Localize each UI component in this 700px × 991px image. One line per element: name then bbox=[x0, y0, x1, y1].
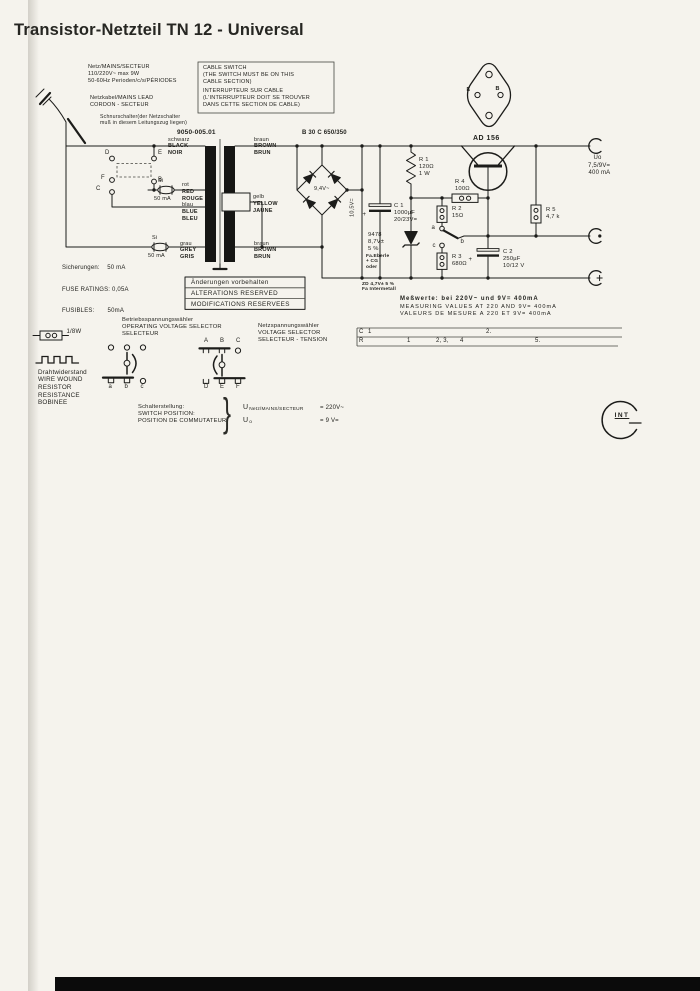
fuse-symbol-grey bbox=[152, 243, 168, 251]
r2-line: 15Ω bbox=[452, 213, 463, 220]
table-cell: 4 bbox=[460, 338, 464, 345]
resistor-r1-symbol bbox=[407, 146, 416, 198]
page-title: Transistor-Netzteil TN 12 - Universal bbox=[14, 27, 304, 34]
selector-title-line: Betriebsspannungswähler bbox=[122, 317, 222, 324]
wire-label-yellow: gelb YELLOW JAUNE bbox=[253, 194, 278, 215]
selector-left-c: c bbox=[141, 384, 144, 391]
package-pin-b-label: B bbox=[496, 86, 500, 93]
wire-label-black: schwarz BLACK NOIR bbox=[168, 137, 190, 158]
wire-label-brown-bottom: braun BROWN BRUN bbox=[254, 241, 276, 262]
c1-line: 1000µF bbox=[394, 210, 417, 217]
measuring-values-line: Meßwerte: bei 220V~ und 9V= 400mA bbox=[400, 296, 539, 303]
table-cell: 1 bbox=[407, 338, 411, 345]
cable-switch-line: CABLE SECTION) bbox=[203, 79, 294, 86]
u-out-label: Uo bbox=[243, 417, 252, 425]
cable-switch-note-fr: INTERRUPTEUR SUR CABLE (L'INTERRUPTEUR D… bbox=[203, 88, 310, 109]
u-subscript: Netz/MAINS/SECTEUR bbox=[249, 407, 303, 412]
mains-selector-line: Netzspannungswähler bbox=[258, 323, 327, 330]
u-symbol: U bbox=[243, 417, 248, 424]
output-uo-label: Uo bbox=[594, 155, 602, 162]
switch-pos-c-label: c bbox=[433, 243, 436, 250]
r1-line: 120Ω bbox=[419, 164, 434, 171]
switch-position-label: Schalterstellung: SWITCH POSITION: POSIT… bbox=[138, 404, 226, 425]
mains-info: Netz/MAINS/SECTEUR 110/220V~ max 9W 50-6… bbox=[88, 64, 177, 85]
fuse-note-line: Sicherungen: 50 mA bbox=[62, 265, 129, 272]
contact-f-label: F bbox=[101, 175, 105, 182]
wire-label-red: rot RED ROUGE bbox=[182, 182, 203, 203]
wire-label-brown-top: braun BROWN BRUN bbox=[254, 137, 276, 158]
measuring-values-line: MEASURING VALUES AT 220 AND 9V= 400mA bbox=[400, 304, 557, 311]
wire-color-line: YELLOW bbox=[253, 201, 278, 208]
resistor-r3-symbol bbox=[437, 248, 447, 278]
fuse-note-line: FUSE RATINGS: 0,05A bbox=[62, 287, 129, 294]
fuse-note-line: FUSIBLES: 50mA bbox=[62, 308, 129, 315]
voltage-selector-contacts bbox=[110, 156, 157, 194]
brace-glyph: } bbox=[223, 393, 231, 433]
transistor-type-label: AD 156 bbox=[473, 135, 500, 142]
wire-color-line: BROWN bbox=[254, 247, 276, 254]
legend-resistor-symbol bbox=[33, 331, 69, 340]
r3-label: R 3 680Ω bbox=[452, 254, 467, 268]
resistor-r5-symbol bbox=[531, 146, 541, 236]
wire-color-line: gelb bbox=[253, 194, 278, 201]
selector-right-d: D bbox=[204, 384, 209, 391]
cord-switch-line: muß in diesem Leitungszug liegen) bbox=[100, 120, 187, 126]
rectifier-type-label: B 30 C 650/350 bbox=[302, 130, 347, 137]
mains-lead-line: Netzkabel/MAINS LEAD bbox=[90, 95, 153, 102]
r5-line: R 5 bbox=[546, 207, 560, 214]
wire-wound-legend: Drahtwiderstand WIRE WOUND RESISTOR RESI… bbox=[38, 369, 87, 408]
wire-label-blue: blau BLUE BLEU bbox=[182, 202, 198, 223]
transformer-part-number: 9050-005.01 bbox=[177, 129, 216, 136]
fuse-rating-label: 50 mA bbox=[148, 253, 165, 260]
r2-label: R 2 15Ω bbox=[452, 206, 463, 220]
wire-color-line: NOIR bbox=[168, 150, 190, 157]
zener-maker-label: Fa.Eberle + CG oder bbox=[366, 254, 389, 272]
mains-plug-icon bbox=[36, 89, 66, 146]
transformer-symbol bbox=[205, 139, 250, 269]
selector-left-a: a bbox=[109, 384, 113, 391]
selector-right-a: A bbox=[204, 338, 208, 345]
wire-color-line: GRIS bbox=[180, 254, 196, 261]
r3-line: R 3 bbox=[452, 254, 467, 261]
wire-color-line: GREY bbox=[180, 247, 196, 254]
c1-line: C 1 bbox=[394, 203, 417, 210]
scan-bottom-bar bbox=[55, 977, 700, 991]
u-subscript: o bbox=[249, 420, 252, 425]
changes-box-row: MODIFICATIONS RESERVEES bbox=[191, 301, 290, 308]
selector-title-line: OPERATING VOLTAGE SELECTOR bbox=[122, 324, 222, 331]
table-cell: 1 bbox=[368, 329, 372, 336]
legend-line: RESISTOR bbox=[38, 384, 87, 392]
transistor-package-drawing bbox=[468, 64, 511, 127]
zener-alt-label: ZD 4,7V± 5 % Fa Intermetall bbox=[362, 282, 396, 294]
switch-position-line: Schalterstellung: bbox=[138, 404, 226, 411]
wire-color-line: BLEU bbox=[182, 216, 198, 223]
mains-info-line: 50-60Hz Perioden/c/s/PÉRIODES bbox=[88, 78, 177, 85]
wire-color-line: braun bbox=[254, 241, 276, 248]
table-row-c-label: C bbox=[359, 329, 364, 336]
cable-switch-line: (L'INTERRUPTEUR DOIT SE TROUVER bbox=[203, 95, 310, 102]
r1-label: R 1 120Ω 1 W bbox=[419, 157, 434, 178]
r4-line: 100Ω bbox=[455, 186, 470, 193]
mains-info-line: Netz/MAINS/SECTEUR bbox=[88, 64, 177, 71]
zener-line: 8,7V± bbox=[368, 239, 384, 246]
scanned-schematic-page: Transistor-Netzteil TN 12 - Universal Ne… bbox=[0, 0, 700, 991]
wire-color-line: BROWN bbox=[254, 143, 276, 150]
r5-label: R 5 4,7 k bbox=[546, 207, 560, 221]
contact-d-label: D bbox=[105, 150, 110, 157]
c2-label: C 2 250µF 10/12 V bbox=[503, 249, 524, 270]
zener-alt-line: Fa Intermetall bbox=[362, 287, 396, 293]
selector-left-b: b bbox=[125, 384, 129, 391]
wire-color-line: RED bbox=[182, 189, 203, 196]
c1-label: C 1 1000µF 20/23V= bbox=[394, 203, 417, 224]
selector-right-e: E bbox=[220, 384, 224, 391]
switch-pos-a-label: a bbox=[432, 225, 436, 232]
cable-switch-line: CABLE SWITCH bbox=[203, 65, 294, 72]
capacitor-c2-symbol bbox=[477, 236, 499, 278]
r4-line: R 4 bbox=[455, 179, 470, 186]
output-voltage-switch-symbol bbox=[440, 226, 458, 247]
changes-box-row: Änderungen vorbehalten bbox=[191, 279, 269, 286]
mains-info-line: 110/220V~ max 9W bbox=[88, 71, 177, 78]
c2-line: 10/12 V bbox=[503, 263, 524, 270]
legend-line: BOBINEE bbox=[38, 399, 87, 407]
fuse-ratings-note: Sicherungen: 50 mA FUSE RATINGS: 0,05A F… bbox=[62, 251, 129, 330]
fuse-symbol-red bbox=[158, 186, 174, 194]
selector-title-line: SELECTEUR bbox=[122, 331, 222, 338]
c1-plus-label: + bbox=[363, 212, 367, 219]
c2-line: 250µF bbox=[503, 256, 524, 263]
zener-line: 9478 bbox=[368, 232, 384, 239]
dc-voltage-label: 10,5V= bbox=[350, 192, 357, 222]
switch-position-line: POSITION DE COMMUTATEUR bbox=[138, 418, 226, 425]
output-voltage-label: 7,5/9V= bbox=[588, 163, 610, 170]
c2-plus-label: + bbox=[469, 257, 473, 264]
wire-color-line: JAUNE bbox=[253, 208, 278, 215]
wire-color-line: rot bbox=[182, 182, 203, 189]
manufacturer-logo-icon bbox=[602, 402, 641, 439]
mains-selector-title: Netzspannungswähler VOLTAGE SELECTOR SEL… bbox=[258, 323, 327, 344]
operating-selector-title: Betriebsspannungswähler OPERATING VOLTAG… bbox=[122, 317, 222, 338]
cord-switch-symbol bbox=[68, 119, 85, 143]
wire-color-line: BRUN bbox=[254, 150, 276, 157]
wire-color-line: blau bbox=[182, 202, 198, 209]
mains-lead-line: CORDON - SECTEUR bbox=[90, 102, 153, 109]
selector-diagram-right bbox=[200, 348, 245, 383]
zener-line: 5 % bbox=[368, 246, 384, 253]
contact-e-label: E bbox=[158, 150, 162, 157]
selector-diagram-left bbox=[103, 345, 146, 384]
cable-switch-line: INTERRUPTEUR SUR CABLE bbox=[203, 88, 310, 95]
mains-selector-line: VOLTAGE SELECTOR bbox=[258, 330, 327, 337]
wire-color-line: BLUE bbox=[182, 209, 198, 216]
changes-box-row: ALTERATIONS RESERVED bbox=[191, 290, 278, 297]
switch-pos-b-label: b bbox=[461, 239, 465, 246]
table-cell: 5. bbox=[535, 338, 540, 345]
mains-lead-label: Netzkabel/MAINS LEAD CORDON - SECTEUR bbox=[90, 95, 153, 109]
r3-line: 680Ω bbox=[452, 261, 467, 268]
fuse-rating-label: 50 mA bbox=[154, 196, 171, 203]
r1-line: R 1 bbox=[419, 157, 434, 164]
ac-voltage-label: 9,4V~ bbox=[314, 186, 330, 193]
u-out-value: = 9 V= bbox=[320, 418, 339, 425]
contact-c-label: C bbox=[96, 186, 101, 193]
manufacturer-logo-text: INT bbox=[609, 412, 635, 419]
wire-color-line: braun bbox=[254, 137, 276, 144]
output-current-label: 400 mA bbox=[589, 170, 611, 177]
wire-label-grey: grau GREY GRIS bbox=[180, 241, 196, 262]
legend-line: RESISTANCE bbox=[38, 392, 87, 400]
resistor-r4-symbol bbox=[452, 194, 478, 202]
r5-line: 4,7 k bbox=[546, 214, 560, 221]
cable-switch-note-en: CABLE SWITCH (THE SWITCH MUST BE ON THIS… bbox=[203, 65, 294, 86]
selector-right-f: F bbox=[236, 384, 240, 391]
table-row-r-label: R bbox=[359, 338, 364, 345]
wire-color-line: BRUN bbox=[254, 254, 276, 261]
switch-position-line: SWITCH POSITION: bbox=[138, 411, 226, 418]
wire-color-line: grau bbox=[180, 241, 196, 248]
r4-label: R 4 100Ω bbox=[455, 179, 470, 193]
r1-line: 1 W bbox=[419, 171, 434, 178]
wire-color-line: schwarz bbox=[168, 137, 190, 144]
cord-switch-note: Schnurschalter(der Netzschalter muß in d… bbox=[100, 114, 187, 126]
selector-right-c: C bbox=[236, 338, 241, 345]
wire-color-line: BLACK bbox=[168, 143, 190, 150]
u-symbol: U bbox=[243, 404, 248, 411]
resistor-r2-symbol bbox=[437, 198, 447, 226]
selector-right-b: B bbox=[220, 338, 224, 345]
c1-line: 20/23V= bbox=[394, 217, 417, 224]
legend-power-label: 1/8W bbox=[67, 329, 82, 336]
wire-wound-symbol bbox=[36, 357, 79, 364]
r2-line: R 2 bbox=[452, 206, 463, 213]
zener-label: 9478 8,7V± 5 % bbox=[368, 232, 384, 253]
measuring-values-line: VALEURS DE MESURE A 220 ET 9V= 400mA bbox=[400, 311, 552, 318]
table-cell: 2, 3, bbox=[436, 338, 449, 345]
cable-switch-line: (THE SWITCH MUST BE ON THIS bbox=[203, 72, 294, 79]
u-netz-label: UNetz/MAINS/SECTEUR bbox=[243, 404, 304, 412]
cable-switch-line: DANS CETTE SECTION DE CABLE) bbox=[203, 102, 310, 109]
u-netz-value: = 220V~ bbox=[320, 405, 344, 412]
package-pin-e-label: E bbox=[467, 87, 471, 94]
legend-line: Drahtwiderstand bbox=[38, 369, 87, 377]
table-cell: 2. bbox=[486, 329, 491, 336]
contact-b-label: B bbox=[158, 177, 162, 184]
fuse-si-label: Si bbox=[152, 235, 157, 242]
c2-line: C 2 bbox=[503, 249, 524, 256]
legend-line: WIRE WOUND bbox=[38, 376, 87, 384]
zener-maker-line: oder bbox=[366, 265, 389, 271]
mains-selector-line: SELECTEUR - TENSION bbox=[258, 337, 327, 344]
